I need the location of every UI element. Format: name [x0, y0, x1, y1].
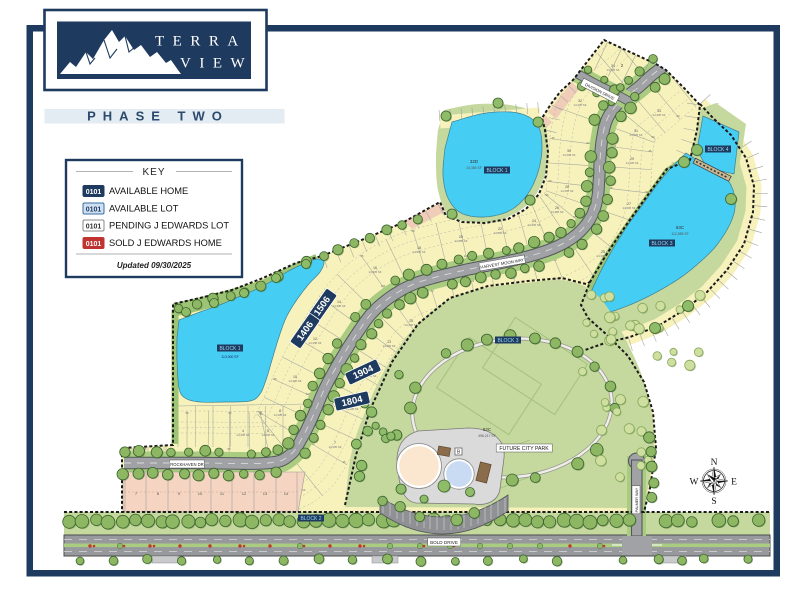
svg-text:14,305 SF: 14,305 SF — [237, 433, 250, 437]
svg-text:14,305 SF: 14,305 SF — [653, 113, 666, 117]
svg-text:32D: 32D — [470, 159, 479, 164]
svg-text:14,305 SF: 14,305 SF — [626, 161, 639, 165]
svg-text:W: W — [690, 478, 699, 488]
svg-text:14,305 SF: 14,305 SF — [551, 210, 564, 214]
svg-text:PALMER WAY: PALMER WAY — [635, 487, 639, 512]
svg-text:14,305 SF: 14,305 SF — [528, 223, 541, 227]
svg-text:AVAILABLE LOT: AVAILABLE LOT — [109, 204, 179, 214]
svg-text:82C: 82C — [483, 427, 492, 432]
svg-text:14,305 SF: 14,305 SF — [309, 341, 322, 345]
svg-text:14,305 SF: 14,305 SF — [623, 206, 636, 210]
svg-text:14,305 SF: 14,305 SF — [289, 379, 302, 383]
svg-text:PHASE TWO: PHASE TWO — [87, 109, 229, 124]
svg-text:14,305 SF: 14,305 SF — [563, 153, 576, 157]
svg-text:PENDING J EDWARDS LOT: PENDING J EDWARDS LOT — [109, 221, 229, 231]
svg-text:KEY: KEY — [142, 167, 165, 178]
svg-text:14,305 SF: 14,305 SF — [383, 344, 396, 348]
svg-text:BOLD DRIVE: BOLD DRIVE — [430, 540, 458, 545]
svg-text:0101: 0101 — [86, 206, 102, 213]
svg-text:BLOCK 1: BLOCK 1 — [486, 168, 507, 174]
svg-text:BLOCK 1: BLOCK 1 — [219, 346, 240, 352]
svg-text:Updated 09/30/2025: Updated 09/30/2025 — [117, 261, 192, 270]
svg-text:BLOCK 2: BLOCK 2 — [300, 516, 321, 522]
svg-text:0101: 0101 — [86, 223, 102, 230]
svg-text:12: 12 — [242, 491, 247, 496]
svg-text:BLOCK 3: BLOCK 3 — [651, 241, 672, 247]
svg-text:14: 14 — [284, 491, 289, 496]
svg-text:14,305 SF: 14,305 SF — [413, 250, 426, 254]
svg-text:BLOCK 4: BLOCK 4 — [707, 147, 728, 153]
svg-text:112,585 SF: 112,585 SF — [671, 232, 688, 236]
svg-text:14,305 SF: 14,305 SF — [561, 189, 574, 193]
svg-text:113,000 SF: 113,000 SF — [221, 355, 238, 359]
svg-text:13: 13 — [263, 491, 268, 496]
svg-text:0101: 0101 — [86, 241, 102, 248]
svg-text:14,385 SF: 14,385 SF — [466, 166, 482, 170]
svg-text:14,305 SF: 14,305 SF — [329, 445, 342, 449]
svg-text:E: E — [731, 478, 737, 488]
svg-text:14,305 SF: 14,305 SF — [262, 433, 275, 437]
svg-text:SOLD J EDWARDS HOME: SOLD J EDWARDS HOME — [109, 238, 222, 248]
svg-text:14,305 SF: 14,305 SF — [369, 270, 382, 274]
svg-text:AVAILABLE HOME: AVAILABLE HOME — [109, 186, 188, 196]
svg-text:14,305 SF: 14,305 SF — [607, 68, 620, 72]
svg-text:FUTURE CITY PARK: FUTURE CITY PARK — [499, 446, 549, 452]
svg-text:BLOCK 3: BLOCK 3 — [497, 338, 518, 344]
svg-text:TERRA: TERRA — [155, 34, 247, 50]
svg-text:S: S — [711, 497, 716, 507]
svg-text:0101: 0101 — [86, 189, 102, 196]
svg-text:14,305 SF: 14,305 SF — [494, 231, 507, 235]
svg-text:63C: 63C — [676, 225, 685, 230]
svg-text:ROCKHAVEN DR: ROCKHAVEN DR — [170, 462, 203, 467]
svg-text:14,305 SF: 14,305 SF — [274, 413, 287, 417]
svg-text:10: 10 — [198, 491, 203, 496]
svg-text:14,305 SF: 14,305 SF — [333, 304, 346, 308]
svg-text:14,305 SF: 14,305 SF — [574, 103, 587, 107]
svg-text:VIEW: VIEW — [180, 56, 253, 72]
svg-text:496,217 SF: 496,217 SF — [478, 434, 496, 438]
svg-text:14,305 SF: 14,305 SF — [630, 133, 643, 137]
svg-text:14,305 SF: 14,305 SF — [455, 239, 468, 243]
svg-text:N: N — [711, 458, 718, 468]
